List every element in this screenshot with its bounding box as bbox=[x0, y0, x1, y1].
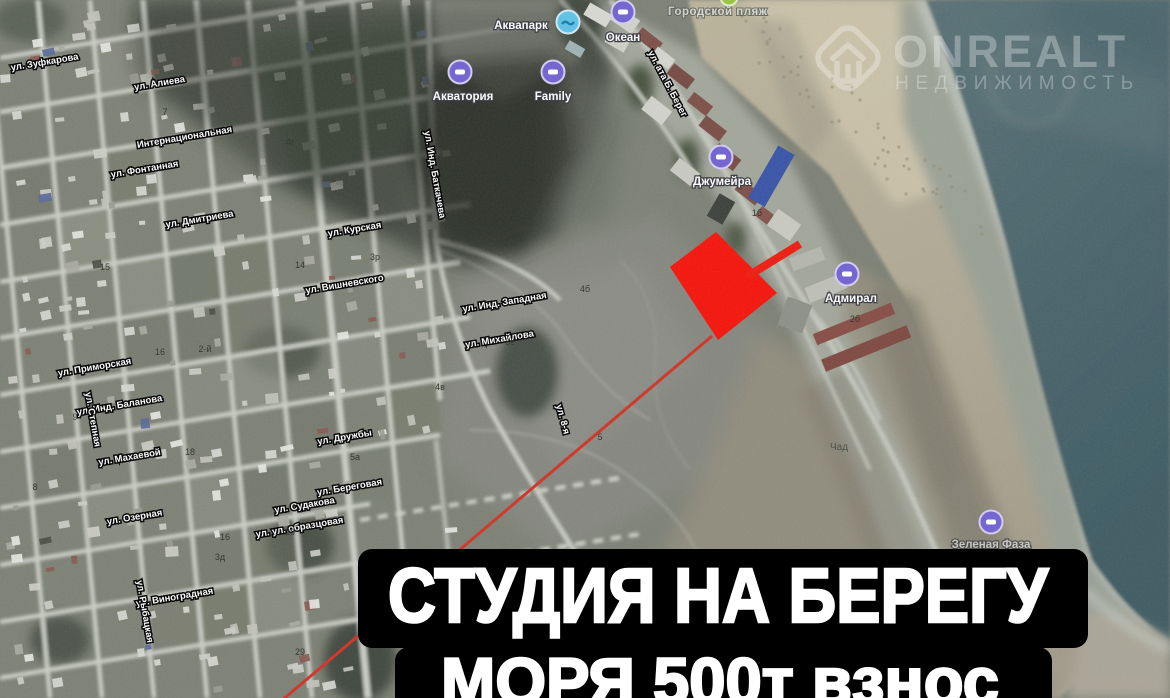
svg-text:МОРЯ 500т взнос: МОРЯ 500т взнос bbox=[441, 644, 999, 698]
svg-text:СТУДИЯ НА БЕРЕГУ: СТУДИЯ НА БЕРЕГУ bbox=[388, 553, 1049, 639]
